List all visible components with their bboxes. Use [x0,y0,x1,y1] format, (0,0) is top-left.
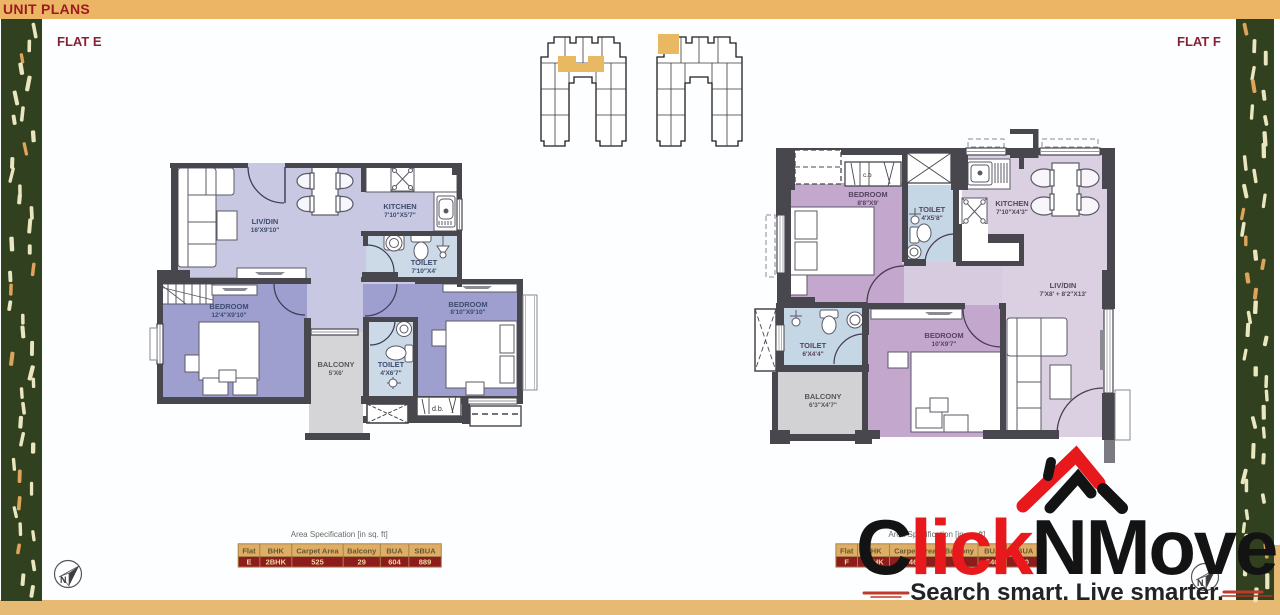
svg-text:KITCHEN: KITCHEN [383,202,416,211]
svg-text:4'X6'7": 4'X6'7" [380,370,401,377]
svg-text:LIV/DIN: LIV/DIN [1050,281,1077,290]
svg-text:525: 525 [311,558,324,567]
svg-text:8'8"X9': 8'8"X9' [857,200,879,207]
svg-text:FLAT E: FLAT E [57,34,102,49]
svg-text:10'X9'7": 10'X9'7" [932,341,957,348]
svg-text:Flat: Flat [242,546,256,555]
svg-text:6'3"X4'7": 6'3"X4'7" [809,402,837,409]
svg-text:Carpet Area: Carpet Area [296,546,339,555]
svg-text:5'X6': 5'X6' [329,370,344,377]
svg-text:7'10"X4': 7'10"X4' [412,268,437,275]
svg-text:BALCONY: BALCONY [804,392,841,401]
svg-text:7'10"X4'3": 7'10"X4'3" [996,209,1028,216]
svg-text:7'10"X5'7": 7'10"X5'7" [384,212,416,219]
svg-text:ClickNMove: ClickNMove [856,503,1276,591]
svg-text:Area Specification [in sq. ft]: Area Specification [in sq. ft] [291,530,388,539]
svg-text:N: N [60,575,67,585]
svg-text:BEDROOM: BEDROOM [448,300,487,309]
svg-text:SBUA: SBUA [414,546,436,555]
svg-text:BALCONY: BALCONY [317,360,354,369]
svg-text:TOILET: TOILET [919,205,946,214]
svg-text:4'X5'8": 4'X5'8" [921,215,942,222]
svg-text:BEDROOM: BEDROOM [209,302,248,311]
svg-text:F: F [844,558,849,567]
svg-text:6'X4'4": 6'X4'4" [802,351,823,358]
svg-text:c.b: c.b [863,172,872,179]
svg-text:Balcony: Balcony [347,546,377,555]
svg-text:889: 889 [419,558,432,567]
svg-text:TOILET: TOILET [411,258,438,267]
svg-text:12'4"X9'10": 12'4"X9'10" [211,312,246,319]
svg-text:LIV/DIN: LIV/DIN [252,217,279,226]
svg-text:KITCHEN: KITCHEN [995,199,1028,208]
svg-text:E: E [246,558,251,567]
svg-text:FLAT F: FLAT F [1177,34,1221,49]
svg-text:BEDROOM: BEDROOM [924,331,963,340]
svg-text:2BHK: 2BHK [266,558,287,567]
svg-text:7'X8' + 8'2"X13': 7'X8' + 8'2"X13' [1039,291,1086,298]
svg-text:BUA: BUA [386,546,403,555]
svg-text:29: 29 [358,558,366,567]
svg-text:Search smart. Live smarter.: Search smart. Live smarter. [910,579,1224,606]
svg-text:TOILET: TOILET [800,341,827,350]
svg-text:UNIT PLANS: UNIT PLANS [3,1,90,17]
svg-text:16'X9'10": 16'X9'10" [251,227,280,234]
svg-text:TOILET: TOILET [378,360,405,369]
svg-text:d.b.: d.b. [432,406,444,413]
svg-text:8'10"X9'10": 8'10"X9'10" [450,309,485,316]
svg-text:Flat: Flat [840,546,854,555]
svg-text:604: 604 [388,558,401,567]
svg-text:BHK: BHK [268,546,285,555]
svg-text:BEDROOM: BEDROOM [848,190,887,199]
